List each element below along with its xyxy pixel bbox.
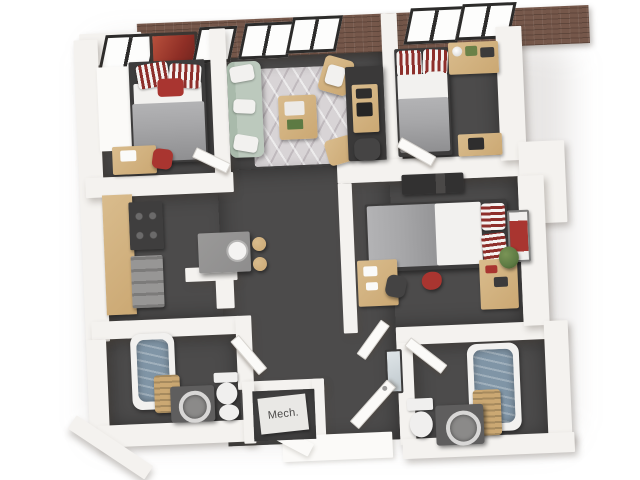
bedroom2-laptop: [468, 137, 484, 150]
kitchen-half-wall-v: [216, 278, 235, 309]
living-window-2: [286, 15, 343, 53]
coffee-table-tray: [284, 101, 305, 116]
bedroom3-bed-sheet: [435, 202, 484, 266]
living-window-1: [238, 21, 295, 59]
bedroom3-wall-art: [401, 172, 464, 195]
mech-room-label-text: Mech.: [267, 406, 299, 421]
right-exterior-wall-bathroom2: [544, 320, 573, 443]
media-cabinet-tv: [356, 102, 373, 117]
bedroom1-desk-papers: [120, 150, 136, 162]
floorplan-3d-render: Mech.: [0, 0, 640, 480]
kitchen-oven-dishwasher: [131, 255, 165, 308]
sofa-pillow-middle: [233, 99, 256, 114]
bedroom2-dresser-plant-box: [465, 46, 477, 56]
kitchen-range: [128, 201, 164, 250]
bathroom2-toilet-tank: [407, 398, 433, 411]
bedroom1-desk-chair: [151, 148, 173, 170]
bedroom2-pillow-1: [396, 50, 422, 77]
bedroom3-desk-papers: [363, 266, 377, 277]
bathroom1-toilet-tank: [213, 372, 237, 383]
bedroom3-bed-blanket: [367, 204, 440, 269]
bedroom1-red-pillow: [157, 78, 184, 97]
bedroom3-pillow-1: [481, 203, 506, 231]
coffee-table-book: [287, 119, 303, 130]
mech-room-label: Mech.: [257, 394, 309, 435]
floorplan-canvas: Mech.: [0, 0, 640, 480]
bathroom1-left-wall: [86, 339, 110, 432]
bedroom3-dresser-tray: [494, 277, 508, 288]
bedroom3-desk-papers-2: [366, 282, 378, 290]
media-cabinet-stereo: [356, 88, 372, 99]
bedroom2-dresser-tray: [480, 47, 494, 58]
living-desk-chair: [354, 138, 381, 161]
bedroom3-dresser-book: [485, 265, 497, 273]
